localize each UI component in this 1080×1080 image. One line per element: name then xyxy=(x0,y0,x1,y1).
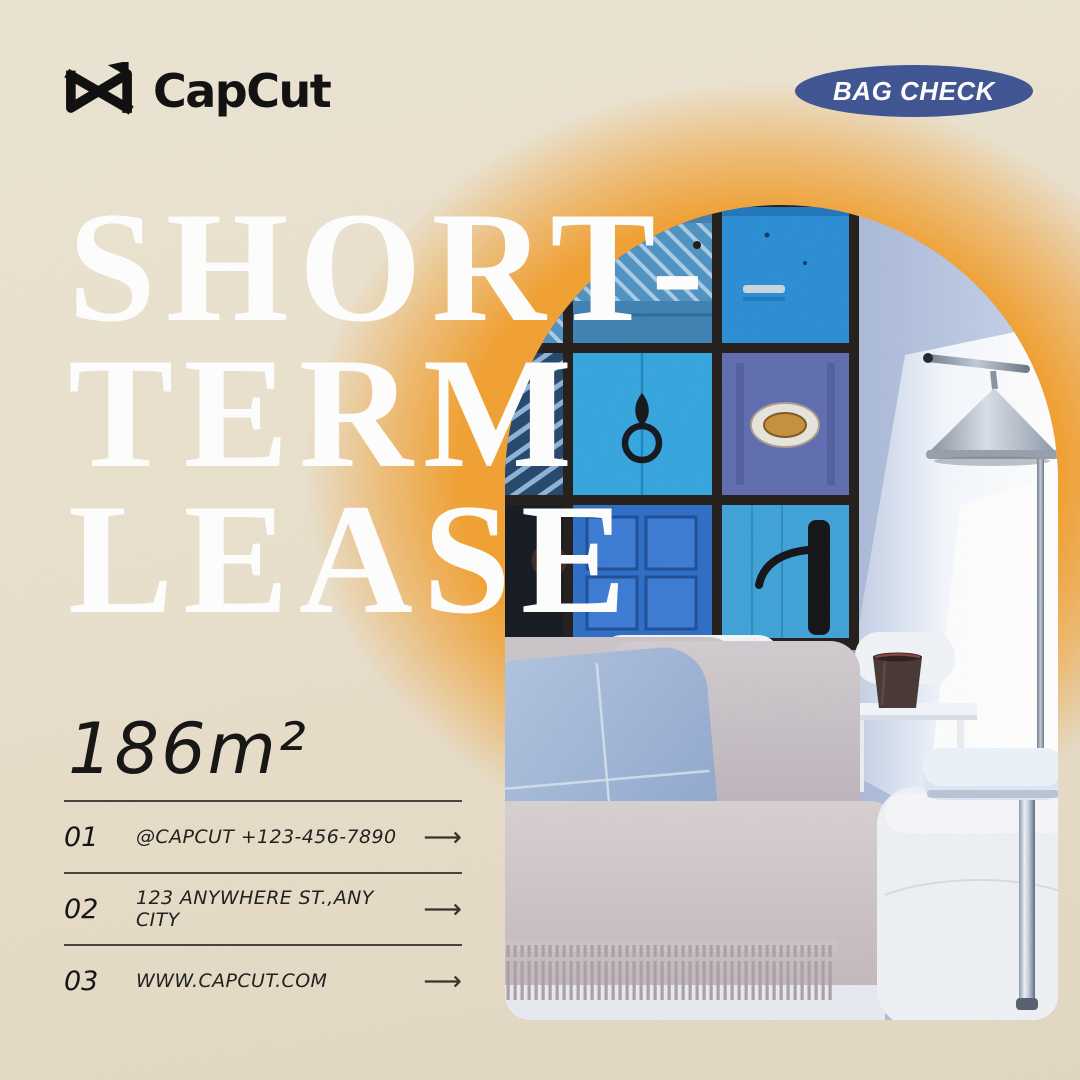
badge-label: BAG CHECK xyxy=(833,76,995,107)
dark-vase xyxy=(873,653,922,709)
contact-row-website[interactable]: 03 WWW.CAPCUT.COM ⟶ xyxy=(64,944,462,1016)
throw-blanket-fringe xyxy=(505,945,835,1000)
contact-list: 01 @CAPCUT +123-456-7890 ⟶ 02 123 ANYWHE… xyxy=(64,800,462,1016)
contact-index: 01 xyxy=(64,822,136,853)
right-arrow-icon: ⟶ xyxy=(423,824,462,851)
right-arrow-icon: ⟶ xyxy=(423,896,462,923)
contact-row-social-phone[interactable]: 01 @CAPCUT +123-456-7890 ⟶ xyxy=(64,800,462,872)
right-arrow-icon: ⟶ xyxy=(423,968,462,995)
headline: SHORT- TERM LEASE xyxy=(68,195,714,633)
headline-line-2: TERM xyxy=(68,341,714,487)
contact-index: 03 xyxy=(64,966,136,997)
capcut-logo-icon xyxy=(62,62,136,120)
headline-line-3: LEASE xyxy=(68,487,714,633)
brand-logo: CapCut xyxy=(62,62,330,120)
contact-index: 02 xyxy=(64,894,136,925)
bag-check-badge[interactable]: BAG CHECK xyxy=(795,65,1033,117)
area-size: 186m² xyxy=(68,714,308,784)
headline-line-1: SHORT- xyxy=(68,195,714,341)
brand-wordmark: CapCut xyxy=(153,64,330,118)
contact-row-address[interactable]: 02 123 ANYWHERE ST.,ANY CITY ⟶ xyxy=(64,872,462,944)
poster-canvas: SHORT- TERM LEASE CapCut BAG CHECK 186m²… xyxy=(0,0,1080,1080)
contact-text: @CAPCUT +123-456-7890 xyxy=(136,826,423,848)
contact-text: WWW.CAPCUT.COM xyxy=(136,970,423,992)
contact-text: 123 ANYWHERE ST.,ANY CITY xyxy=(136,887,423,931)
